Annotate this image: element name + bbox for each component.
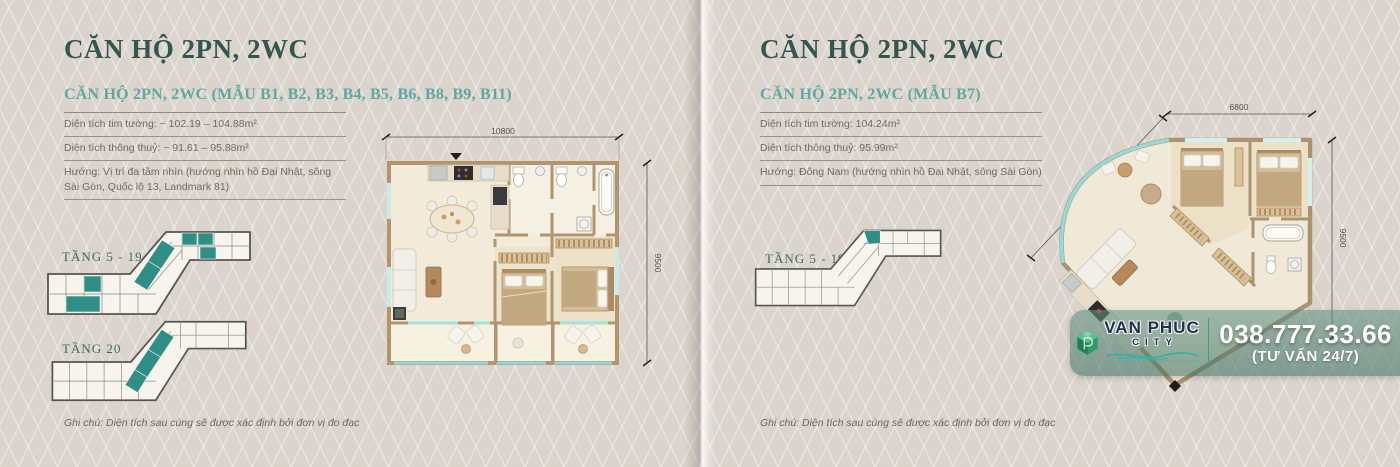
brand-hotline-badge: VAN PHUC CITY 038.777.33.66 (TƯ VẤN 24/7… — [1070, 310, 1400, 376]
spec-row-gross-area: Diện tích tim tường: ~ 102.19 – 104.88m² — [64, 113, 346, 137]
spec-row-gross-area: Diện tích tim tường: 104.24m² — [760, 113, 1042, 137]
floor-plan-left: 10800 9500 — [378, 127, 663, 382]
spec-row-orientation: Hướng: Đông Nam (hướng nhìn hồ Đại Nhật,… — [760, 161, 1042, 185]
spec-row-net-area: Diện tích thông thuỷ: ~ 91.61 – 95.88m² — [64, 137, 346, 161]
plan-subtitle: CĂN HỘ 2PN, 2WC (MẪU B1, B2, B3, B4, B5,… — [64, 86, 512, 104]
page-title: CĂN HỘ 2PN, 2WC — [760, 34, 1005, 65]
hotline-subtitle: (TƯ VẤN 24/7) — [1219, 348, 1392, 365]
dimension-label-top: 6800 — [1230, 102, 1249, 112]
footnote: Ghi chú: Diện tích sau cùng sẽ được xác … — [64, 417, 359, 429]
spec-table: Diện tích tim tường: ~ 102.19 – 104.88m²… — [64, 112, 346, 200]
dimension-label-right: 9500 — [1338, 229, 1348, 248]
brand-city: CITY — [1110, 337, 1200, 348]
van-phuc-logo-icon — [1076, 312, 1099, 374]
hotline-number: 038.777.33.66 — [1219, 321, 1392, 348]
hotline-block: 038.777.33.66 (TƯ VẤN 24/7) — [1219, 321, 1392, 365]
floor-location-diagram-5-19 — [752, 224, 948, 312]
dimension-label-right: 9500 — [653, 254, 663, 273]
entry-arrow-icon — [450, 153, 462, 160]
plan-subtitle: CĂN HỘ 2PN, 2WC (MẪU B7) — [760, 86, 981, 104]
footnote: Ghi chú: Diện tích sau cùng sẽ được xác … — [760, 417, 1055, 429]
floor-location-diagram-5-19 — [44, 226, 258, 320]
brand-name: VAN PHUC — [1104, 319, 1200, 337]
floor-location-diagram-20 — [48, 316, 254, 406]
dimension-label-top: 10800 — [491, 127, 515, 136]
brand-block: VAN PHUC CITY — [1104, 319, 1200, 366]
page-fold-crease — [684, 0, 716, 467]
brochure-page: CĂN HỘ 2PN, 2WC CĂN HỘ 2PN, 2WC (MẪU B1,… — [0, 0, 1400, 467]
badge-divider — [1208, 318, 1209, 368]
spec-row-net-area: Diện tích thông thuỷ: 95.99m² — [760, 137, 1042, 161]
wave-icon — [1104, 352, 1200, 362]
spec-row-orientation: Hướng: Vị trí đa tầm nhìn (hướng nhìn hồ… — [64, 161, 346, 199]
page-title: CĂN HỘ 2PN, 2WC — [64, 34, 309, 65]
spec-table: Diện tích tim tường: 104.24m² Diện tích … — [760, 112, 1042, 186]
